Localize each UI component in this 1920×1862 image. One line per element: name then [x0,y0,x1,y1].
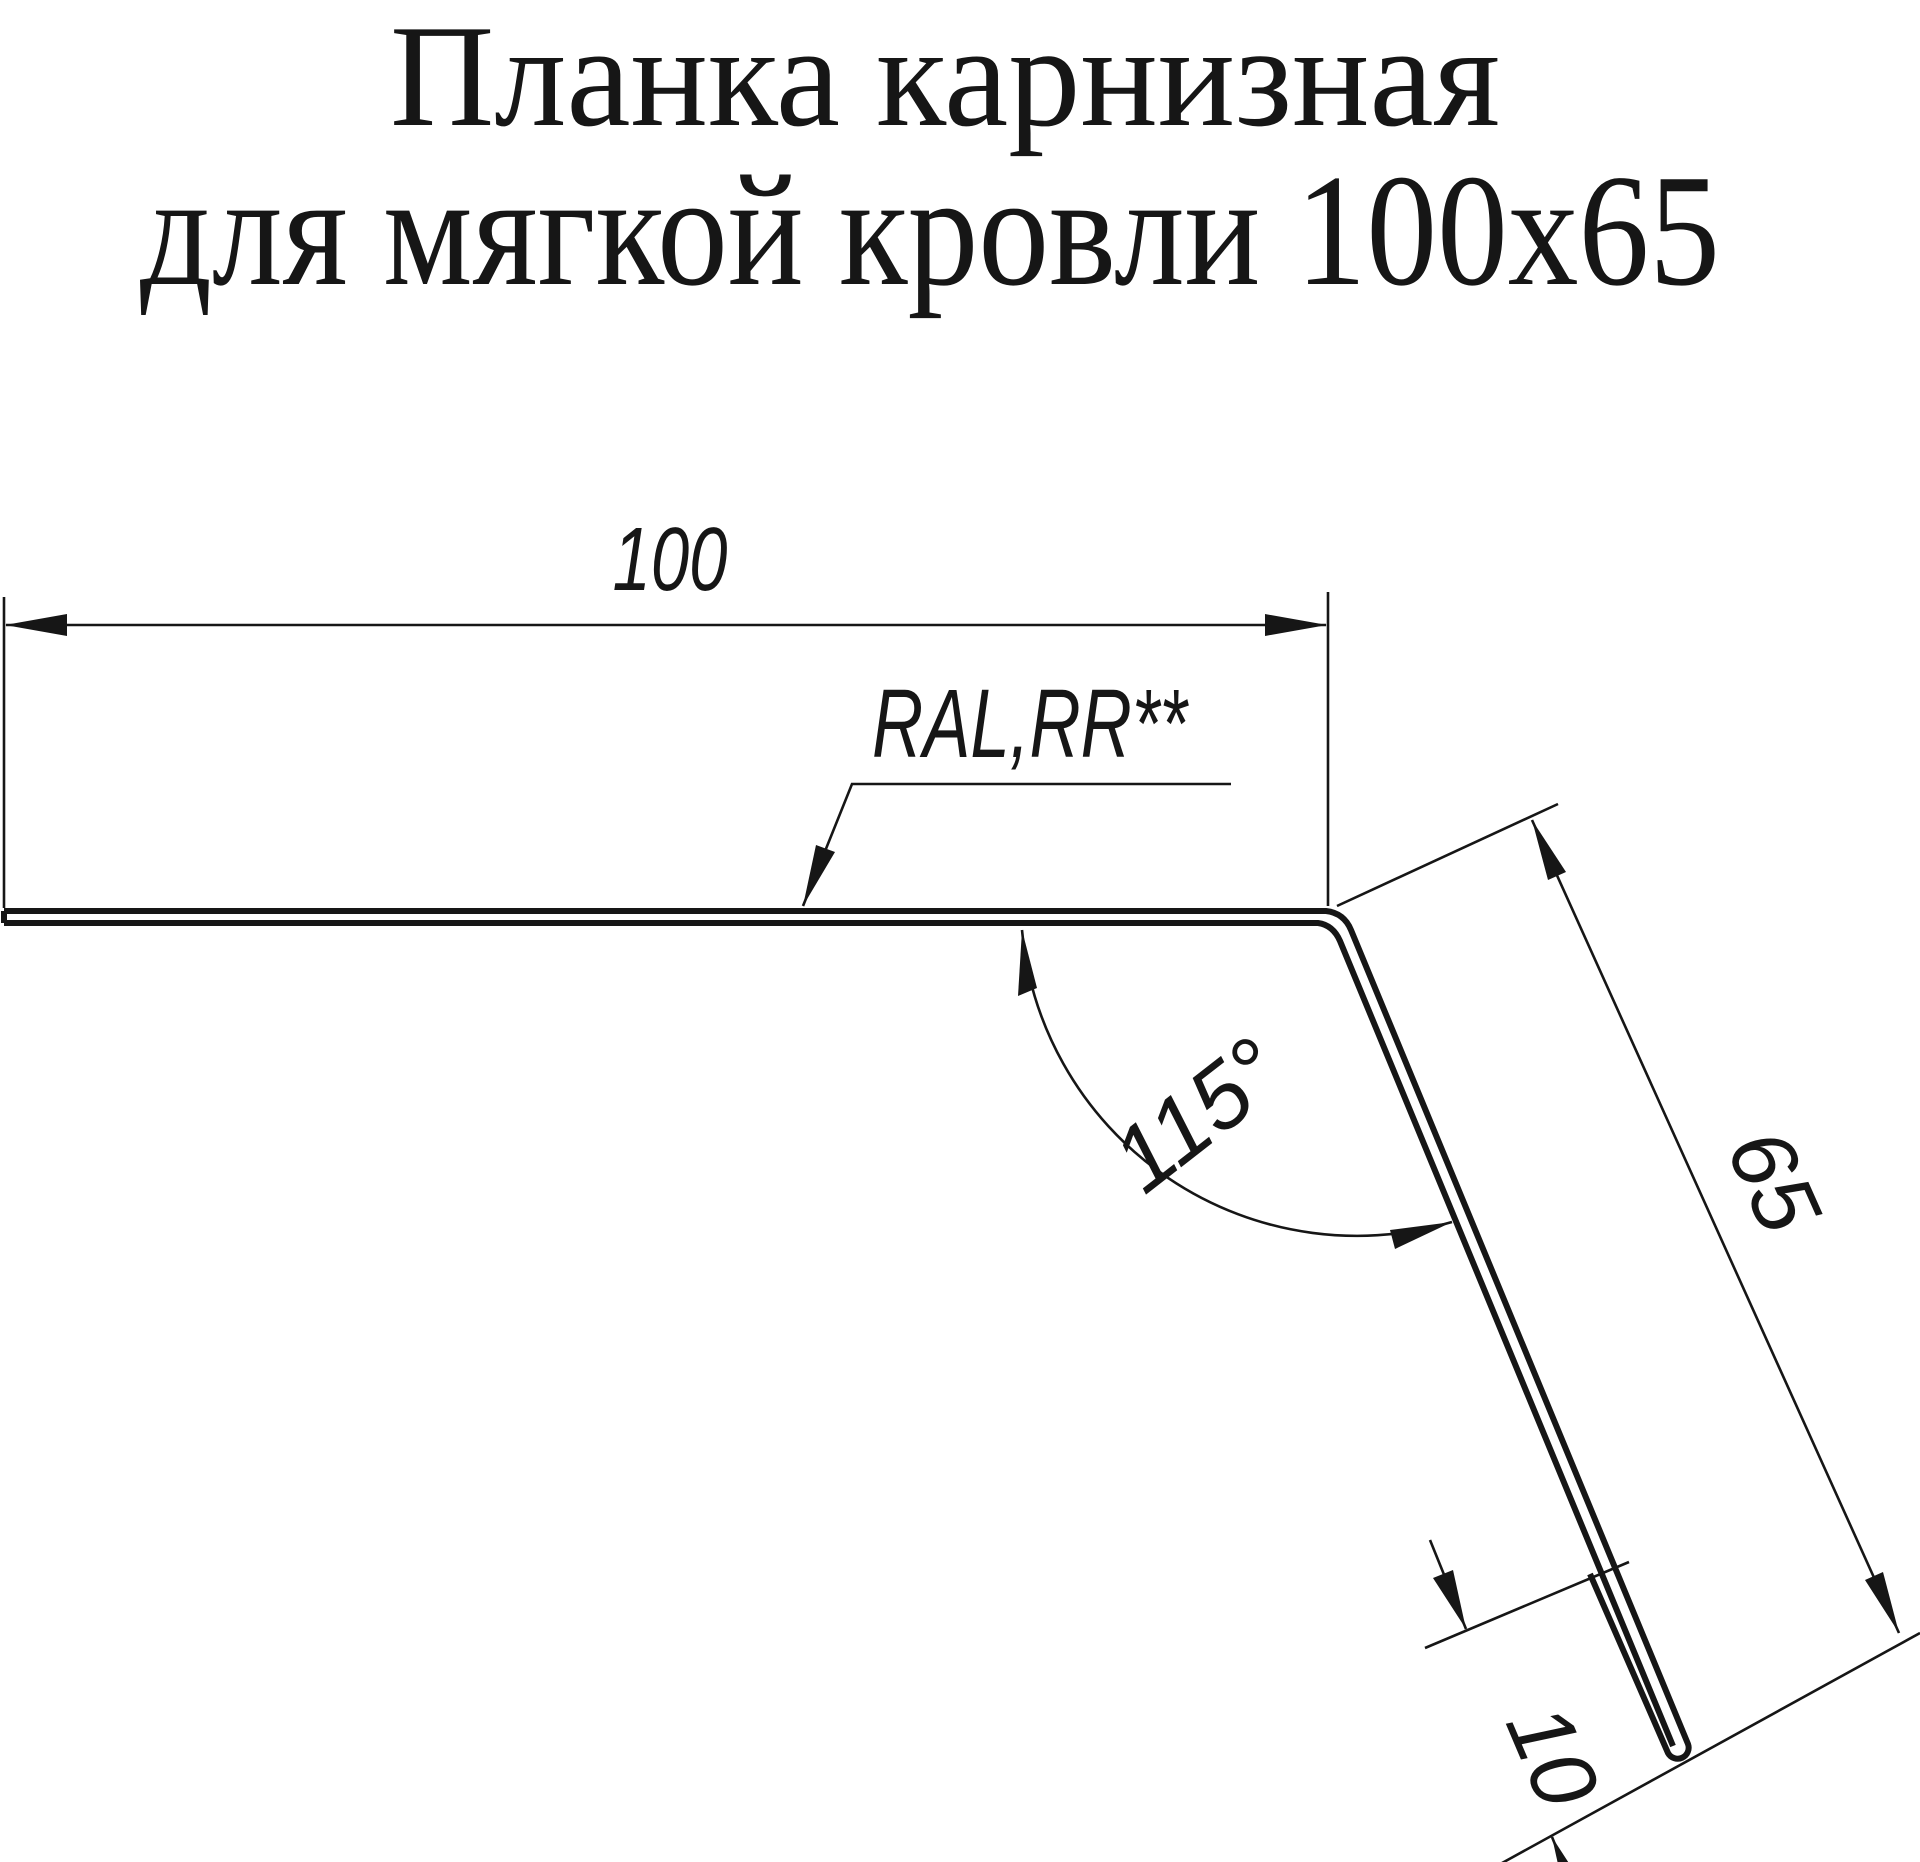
arrow-10-top-icon [1433,1570,1466,1629]
leader-arrow-icon [803,845,835,906]
drawing-title: Планка карнизная для мягкой кровли 100х6… [140,0,1720,319]
drawing-page: Планка карнизная для мягкой кровли 100х6… [0,0,1920,1862]
profile-inner-surface-path [4,923,1673,1746]
dimension-line-65 [1532,820,1899,1633]
arrow-right-icon [1265,614,1327,636]
leader-line [803,784,1231,906]
dim-65-label: 65 [1707,1115,1839,1248]
angle-arrow-top-icon [1018,930,1037,996]
extension-line-65-top [1337,804,1558,906]
title-line-1: Планка карнизная [390,0,1500,157]
angle-dimension-115: 115° [1018,930,1452,1249]
dim-10-label: 10 [1486,1690,1617,1821]
title-line-2: для мягкой кровли 100х65 [140,141,1720,319]
coating-label: RAL,RR** [872,669,1189,778]
dimension-65: 65 [1337,804,1920,1862]
coating-leader: RAL,RR** [803,669,1231,906]
profile-outline [4,911,1689,1759]
angle-arrow-side-icon [1390,1222,1452,1249]
arrow-65-bottom-icon [1865,1572,1899,1633]
arrow-65-top-icon [1532,820,1566,880]
dim-100-label: 100 [613,510,728,610]
profile-outer-surface-path [4,911,1689,1759]
angle-label: 115° [1094,1019,1301,1212]
arrow-10-bottom-icon [1552,1837,1585,1862]
arrow-left-icon [5,614,67,636]
technical-drawing: Планка карнизная для мягкой кровли 100х6… [0,0,1920,1862]
